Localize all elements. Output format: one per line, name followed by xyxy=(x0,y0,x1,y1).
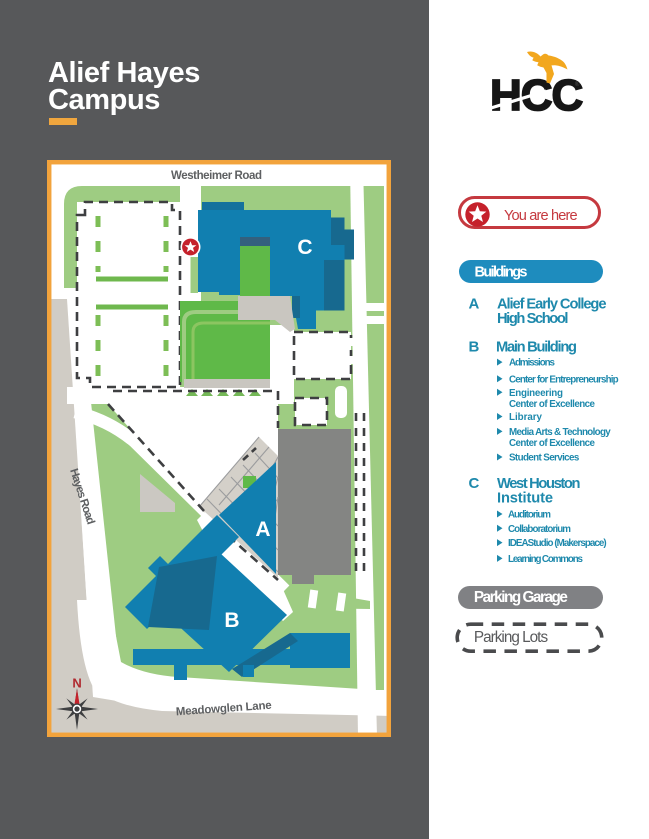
svg-text:Center for Entrepreneurship: Center for Entrepreneurship xyxy=(509,374,619,385)
svg-text:Student Services: Student Services xyxy=(509,453,580,464)
svg-text:A: A xyxy=(255,518,270,541)
svg-text:IDEAStudio (Makerspace): IDEAStudio (Makerspace) xyxy=(508,538,607,549)
svg-text:Parking Lots: Parking Lots xyxy=(474,629,549,646)
svg-text:Parking Garage: Parking Garage xyxy=(474,589,568,606)
svg-text:Center of Excellence: Center of Excellence xyxy=(509,438,596,449)
svg-text:Center of Excellence: Center of Excellence xyxy=(509,399,596,410)
svg-text:Westheimer Road: Westheimer Road xyxy=(171,170,262,182)
svg-text:N: N xyxy=(72,676,81,691)
svg-text:High School: High School xyxy=(497,311,569,327)
svg-text:B: B xyxy=(469,339,480,356)
svg-text:Institute: Institute xyxy=(497,490,553,506)
svg-text:Media Arts & Technology: Media Arts & Technology xyxy=(509,427,611,438)
svg-text:You are here: You are here xyxy=(504,208,578,224)
svg-text:A: A xyxy=(469,296,480,313)
svg-text:Collaboratorium: Collaboratorium xyxy=(508,524,571,535)
svg-text:Auditorium: Auditorium xyxy=(508,510,551,521)
svg-text:C: C xyxy=(469,475,480,492)
svg-text:Library: Library xyxy=(509,412,543,423)
svg-text:Buildings: Buildings xyxy=(475,265,528,281)
svg-text:C: C xyxy=(297,236,312,259)
svg-text:B: B xyxy=(224,609,239,632)
svg-text:Engineering: Engineering xyxy=(509,388,563,399)
svg-text:Admissions: Admissions xyxy=(509,358,556,369)
svg-text:Learning Commons: Learning Commons xyxy=(508,554,584,565)
svg-text:Main Building: Main Building xyxy=(496,340,577,356)
